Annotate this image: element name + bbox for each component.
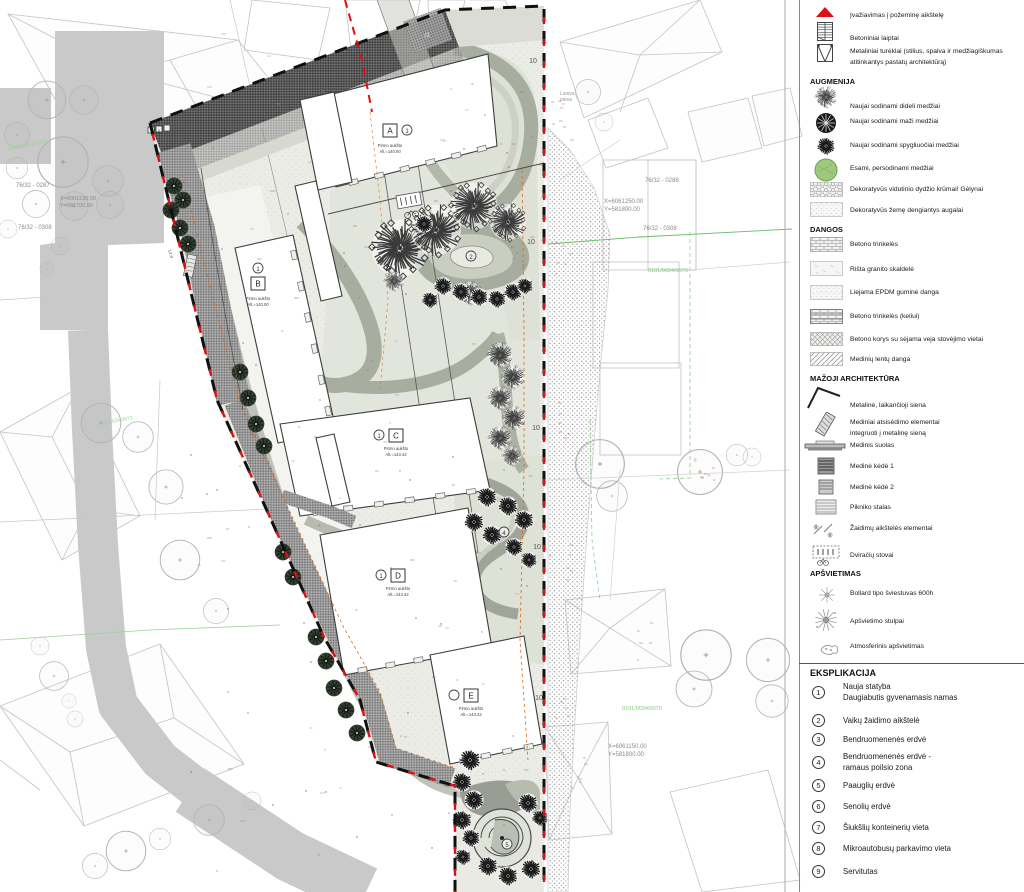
svg-text:Alt.=140.00: Alt.=140.00 bbox=[379, 149, 401, 154]
svg-text:Alt.=143.42: Alt.=143.42 bbox=[460, 712, 482, 717]
svg-text:A: A bbox=[387, 127, 393, 136]
svg-text:B: B bbox=[255, 280, 260, 289]
svg-text:Pirmo aukšto: Pirmo aukšto bbox=[459, 706, 484, 711]
svg-text:Pirmo aukšto: Pirmo aukšto bbox=[384, 446, 409, 451]
svg-text:X=6061250.00: X=6061250.00 bbox=[604, 199, 644, 205]
svg-text:Pirmo aukšto: Pirmo aukšto bbox=[378, 143, 403, 148]
svg-text:Pirmo aukšto: Pirmo aukšto bbox=[246, 296, 271, 301]
svg-text:X=6061230.00: X=6061230.00 bbox=[60, 196, 96, 202]
svg-text:C: C bbox=[393, 432, 399, 441]
svg-text:z: z bbox=[158, 128, 160, 133]
svg-text:Alt.=143.42: Alt.=143.42 bbox=[387, 592, 409, 597]
svg-text:10: 10 bbox=[527, 239, 535, 246]
svg-text:0101/0034/0070: 0101/0034/0070 bbox=[648, 268, 688, 274]
svg-text:Alt.=143.42: Alt.=143.42 bbox=[385, 452, 407, 457]
svg-text:10: 10 bbox=[532, 425, 540, 432]
svg-text:10: 10 bbox=[535, 695, 543, 702]
svg-text:pieva: pieva bbox=[560, 97, 572, 103]
svg-text:Y=581800.00: Y=581800.00 bbox=[608, 752, 645, 758]
svg-text:76/32 - 0288: 76/32 - 0288 bbox=[645, 178, 679, 184]
svg-text:76/32 - 0287: 76/32 - 0287 bbox=[16, 183, 50, 189]
svg-text:10: 10 bbox=[529, 58, 537, 65]
svg-text:Pirmo aukšto: Pirmo aukšto bbox=[386, 586, 411, 591]
svg-text:0101/0034/0070: 0101/0034/0070 bbox=[622, 706, 662, 712]
svg-text:X=6061150.00: X=6061150.00 bbox=[608, 744, 647, 750]
svg-text:D: D bbox=[395, 572, 401, 581]
svg-text:10: 10 bbox=[533, 544, 541, 551]
svg-text:76/32 - 0308: 76/32 - 0308 bbox=[18, 225, 52, 231]
svg-text:Alt.=140.00: Alt.=140.00 bbox=[247, 302, 269, 307]
svg-text:Y=581700.00: Y=581700.00 bbox=[60, 203, 93, 209]
svg-text:E: E bbox=[468, 692, 473, 701]
svg-text:Y=581800.00: Y=581800.00 bbox=[604, 207, 641, 213]
svg-text:76/32 - 0308: 76/32 - 0308 bbox=[643, 226, 677, 232]
svg-text:(1: (1 bbox=[424, 33, 430, 39]
